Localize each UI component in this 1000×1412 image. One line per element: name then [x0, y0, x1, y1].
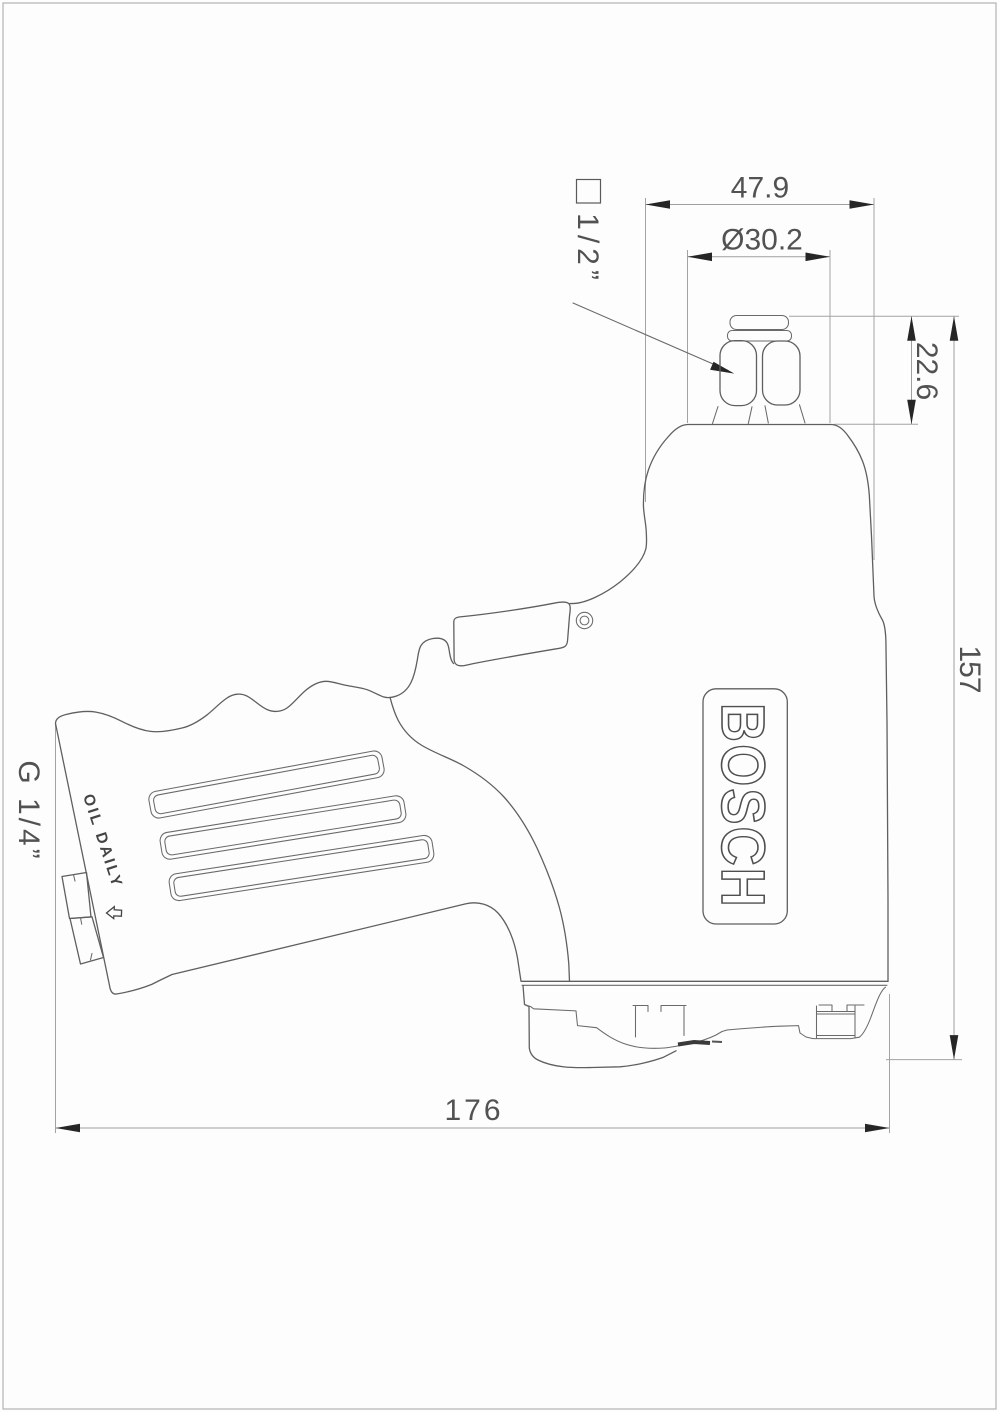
- svg-text:Ø30.2: Ø30.2: [721, 224, 803, 257]
- svg-text:176: 176: [444, 1094, 503, 1127]
- svg-text:BOSCH: BOSCH: [708, 703, 776, 909]
- svg-text:1/2”: 1/2”: [571, 213, 604, 285]
- svg-text:157: 157: [953, 645, 986, 692]
- svg-text:22.6: 22.6: [910, 342, 943, 400]
- svg-text:47.9: 47.9: [731, 172, 789, 205]
- svg-text:G 1/4”: G 1/4”: [12, 760, 45, 861]
